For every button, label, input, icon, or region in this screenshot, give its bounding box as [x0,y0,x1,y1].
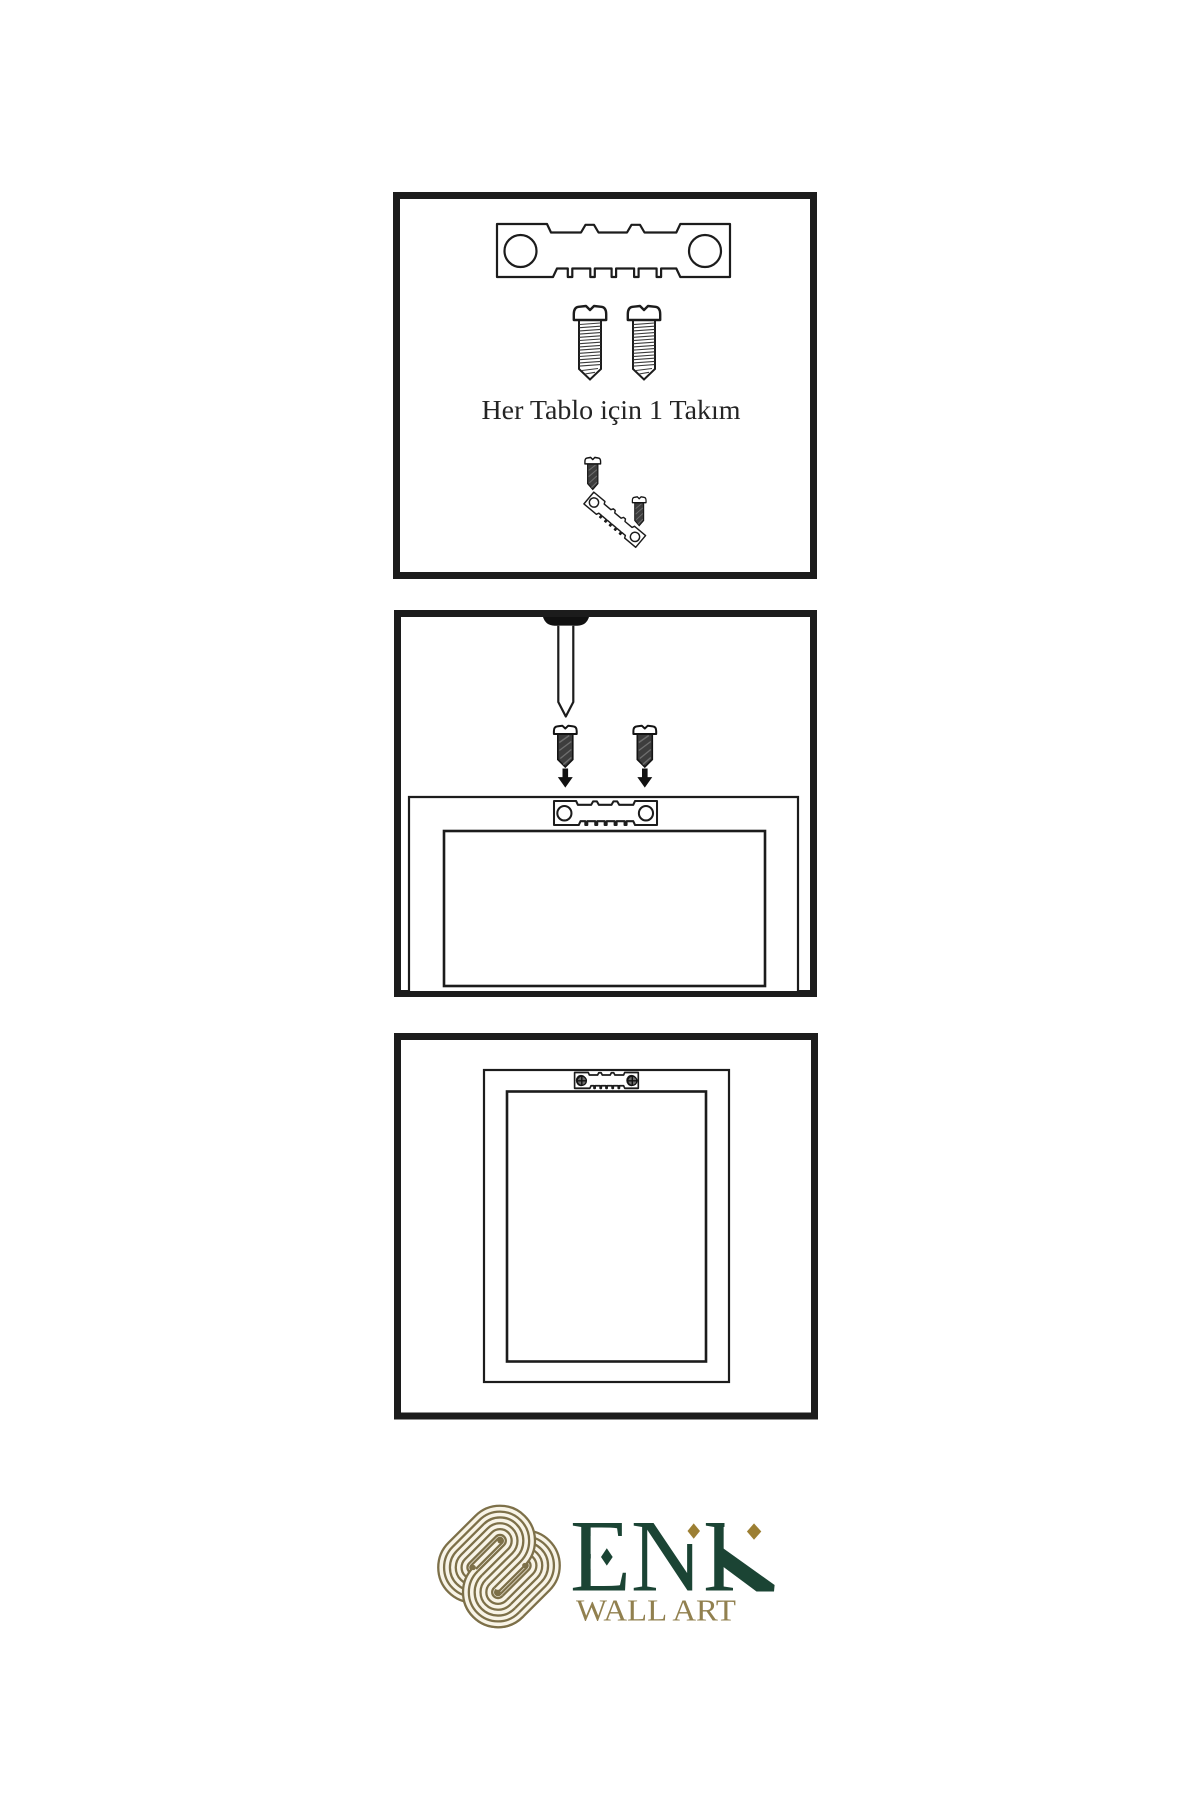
svg-text:Her Tablo için 1 Takım: Her Tablo için 1 Takım [482,394,741,425]
svg-text:WALL ART: WALL ART [576,1593,736,1628]
